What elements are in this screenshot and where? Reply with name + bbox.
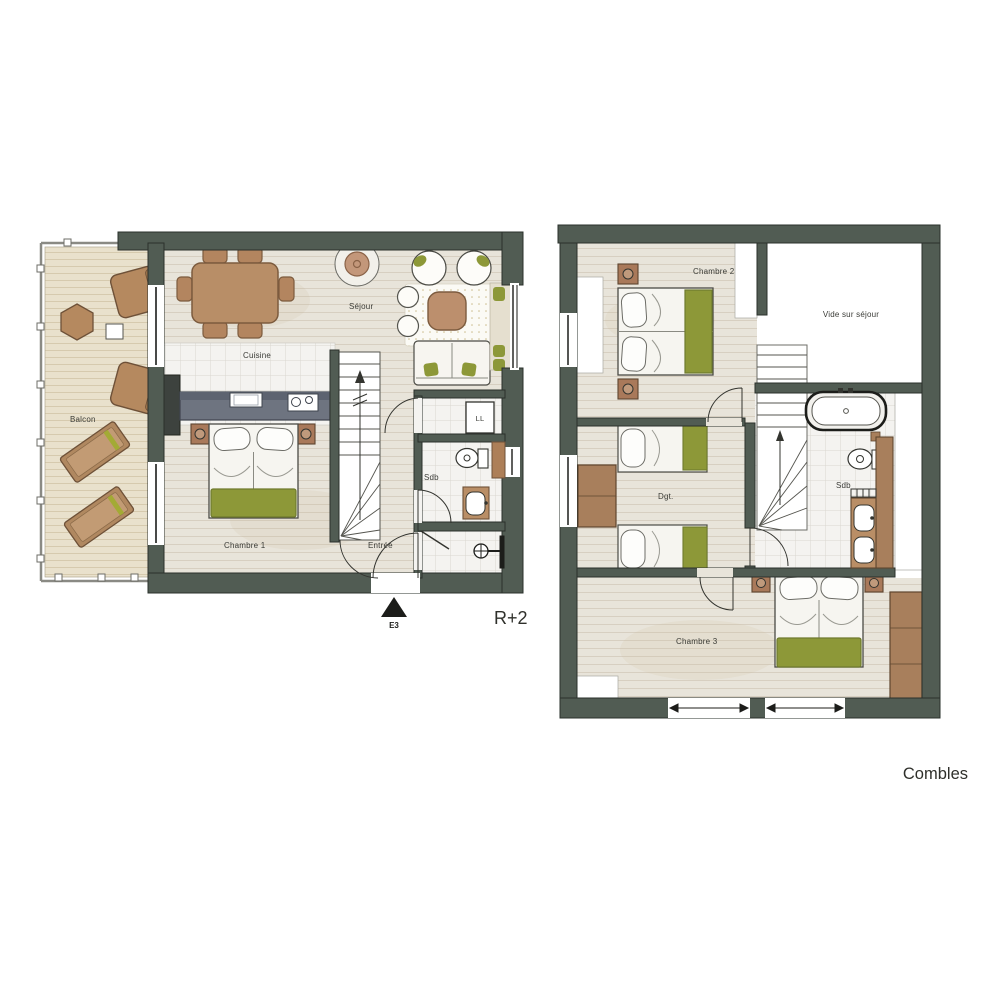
- balcony: Balcon: [37, 239, 165, 581]
- bed-blanket: [683, 527, 707, 571]
- washbasin: [466, 492, 485, 515]
- sofa: [414, 341, 490, 385]
- floorplan-sheet: { "page": { "background": "#ffffff" }, "…: [0, 0, 1000, 1000]
- chambre1-bed: [191, 424, 315, 518]
- bed-blanket: [685, 290, 712, 373]
- bay-window: [510, 283, 519, 370]
- room-label-entree: Entrée: [368, 541, 393, 550]
- staircase-r2: [339, 352, 380, 540]
- room-label-sdb-r2: Sdb: [424, 473, 439, 482]
- entrance-marker-triangle: [381, 597, 407, 617]
- dining-table: [192, 263, 278, 323]
- room-label-sdb-combles: Sdb: [836, 481, 851, 490]
- kitchen-tall-cabinet: [163, 375, 180, 435]
- floor-plan-r2: Balcon: [35, 225, 545, 635]
- chambre2-door-opening: [706, 418, 742, 426]
- room-label-chambre1: Chambre 1: [224, 541, 266, 550]
- bath-panel: [492, 442, 505, 478]
- room-label-cuisine: Cuisine: [243, 351, 271, 360]
- room-label-dgt: Dgt.: [658, 492, 673, 501]
- room-label-chambre2: Chambre 2: [693, 267, 735, 276]
- bed-blanket: [777, 638, 861, 667]
- staircase-combles: [757, 345, 807, 530]
- level-label-r2: R+2: [494, 608, 528, 628]
- entrance-door-opening: [371, 573, 420, 593]
- vanity-panel: [876, 437, 893, 568]
- bed-blanket: [683, 426, 707, 470]
- toilet: [848, 449, 872, 469]
- room-label-balcon: Balcon: [70, 415, 96, 424]
- wardrobe: [890, 592, 922, 700]
- window-bench: [490, 283, 512, 371]
- coffee-table: [428, 292, 466, 330]
- room-label-chambre3: Chambre 3: [676, 637, 718, 646]
- room-label-vide: Vide sur séjour: [823, 310, 879, 319]
- chambre3-door-opening: [697, 568, 733, 577]
- toilet: [456, 449, 478, 468]
- room-label-ll: LL: [476, 414, 485, 423]
- entrance-marker-label: E3: [389, 621, 399, 630]
- cooktop: [288, 394, 318, 411]
- floor-plan-combles: Chambre 2 Vide sur séjour Dgt. Sdb Chamb…: [550, 215, 970, 785]
- bed-blanket: [211, 489, 296, 517]
- room-label-sejour: Séjour: [349, 302, 373, 311]
- level-label-combles: Combles: [903, 765, 968, 783]
